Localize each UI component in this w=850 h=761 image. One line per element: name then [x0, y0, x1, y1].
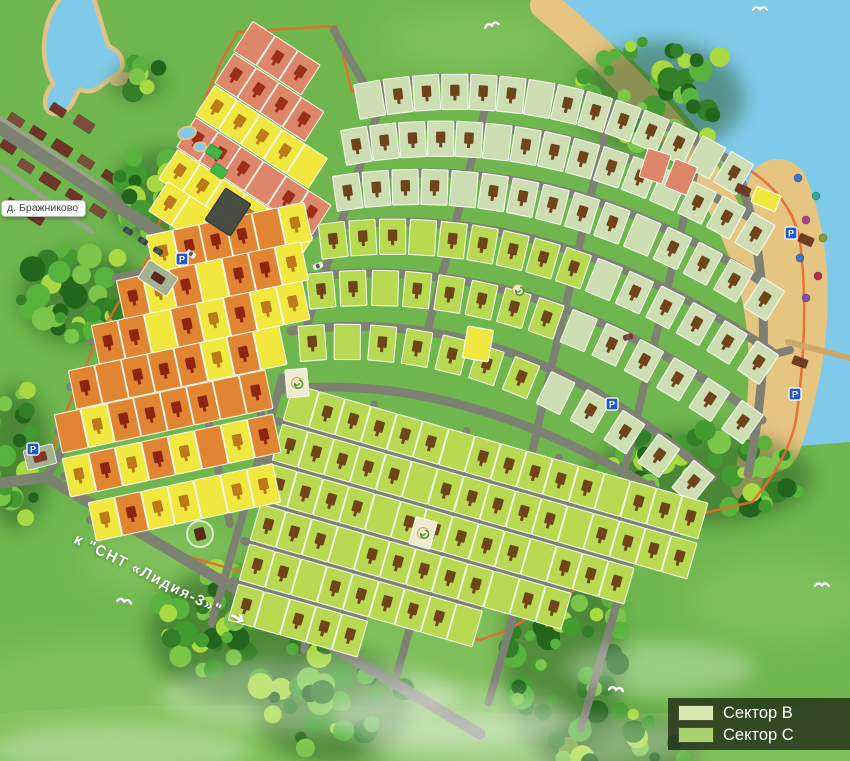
legend-label-sector-c: Сектор C	[723, 727, 794, 744]
legend-label-sector-b: Сектор B	[723, 705, 793, 722]
legend-item-sector-c: Сектор C	[678, 727, 840, 744]
legend-swatch-sector-b	[678, 705, 714, 721]
map-legend: Сектор BСектор C	[668, 698, 850, 750]
village-label: д. Бражниково	[1, 200, 86, 217]
site-plan-map: PPPPP д. Бражниково к "СНТ «Лидия-3»"➔ С…	[0, 0, 850, 761]
legend-item-sector-b: Сектор B	[678, 705, 840, 722]
map-canvas: PPPPP	[0, 0, 850, 761]
legend-swatch-sector-c	[678, 727, 714, 743]
texture-overlay	[0, 0, 850, 761]
